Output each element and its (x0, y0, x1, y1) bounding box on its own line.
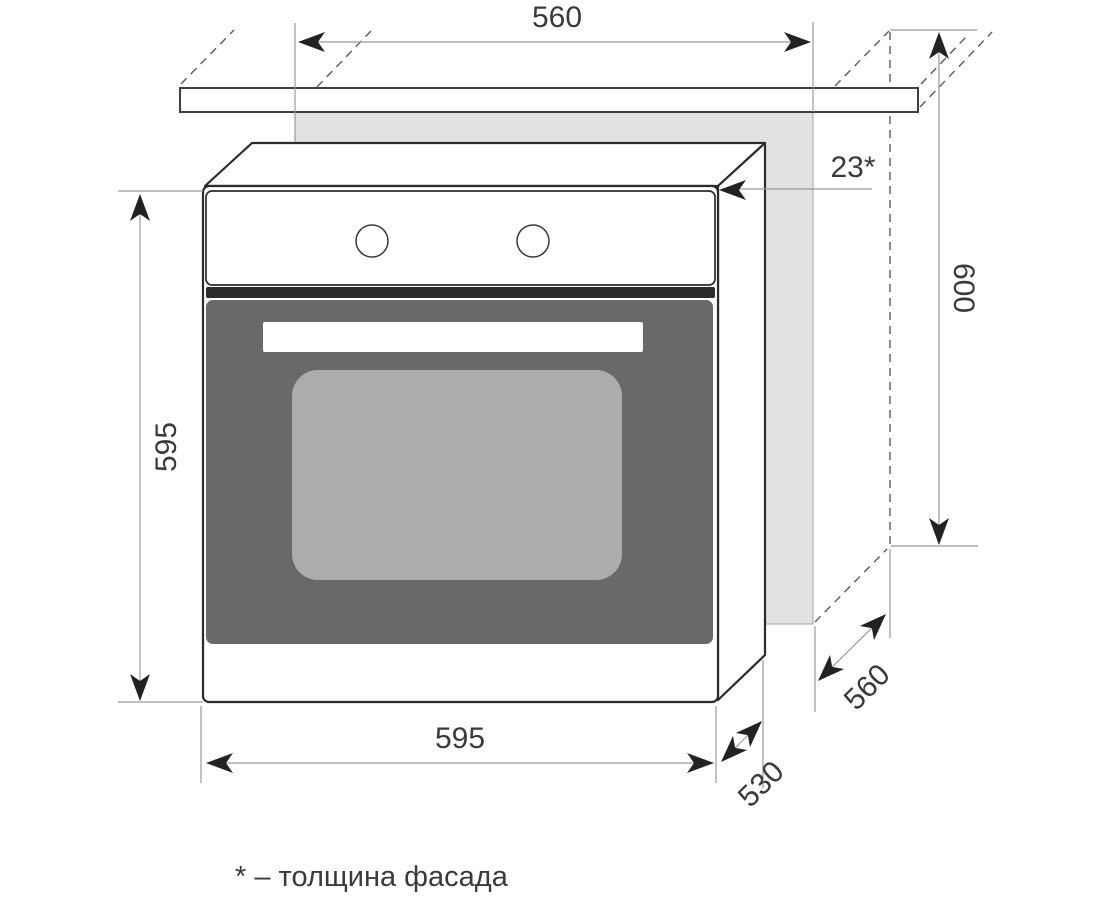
right-knob (517, 225, 549, 257)
door-window (292, 370, 622, 580)
label-cabinet-depth: 560 (838, 658, 897, 717)
label-oven-width: 595 (435, 722, 485, 755)
label-oven-height: 595 (150, 422, 183, 472)
control-panel (206, 191, 715, 285)
label-oven-depth: 530 (732, 755, 791, 814)
countertop (180, 88, 918, 112)
label-niche-width: 560 (532, 1, 582, 34)
door-handle-slot (263, 322, 643, 352)
label-cabinet-height: 600 (947, 263, 980, 313)
oven-installation-diagram: 560 23* 600 595 595 530 560 * – толщина … (0, 0, 1100, 900)
diagram-svg: 560 23* 600 595 595 530 560 * – толщина … (0, 0, 1100, 900)
footnote-facade-thickness: * – толщина фасада (235, 861, 509, 893)
oven-top-face (205, 143, 765, 186)
label-facade-thickness: 23* (830, 151, 875, 184)
oven-side-face (718, 143, 765, 700)
oven (203, 143, 765, 702)
panel-trim-strip (206, 287, 715, 298)
left-knob (356, 225, 388, 257)
